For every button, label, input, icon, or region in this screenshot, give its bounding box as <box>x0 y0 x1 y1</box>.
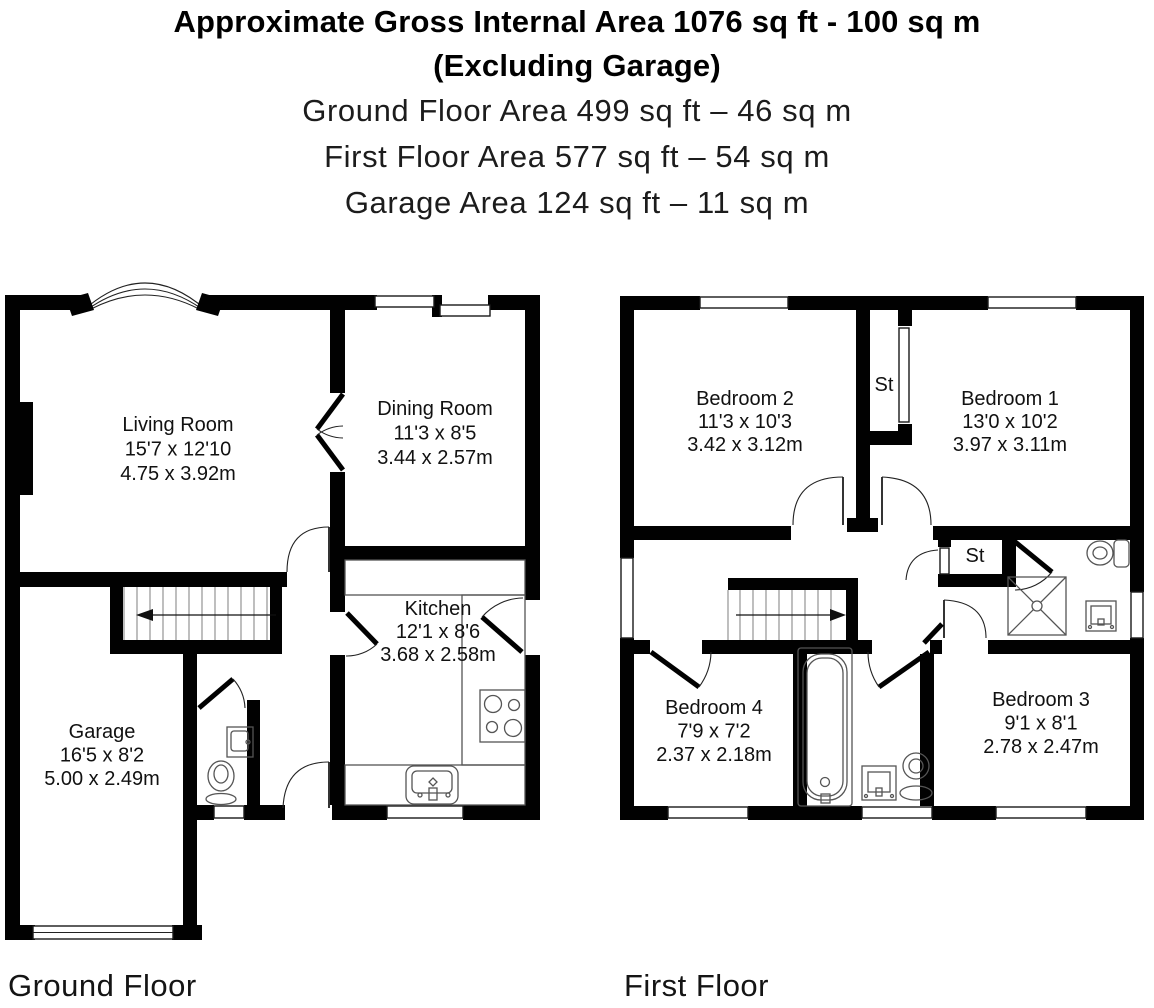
room-label-kitchen-name: Kitchen <box>405 598 472 620</box>
storage2-label: St <box>966 545 985 567</box>
ground-stairs <box>124 587 276 640</box>
storage1-label: St <box>875 374 894 396</box>
landing-window <box>621 558 633 638</box>
dining-window-2 <box>440 305 490 316</box>
ground-floor-title: Ground Floor <box>8 968 197 1004</box>
shower-room-door <box>1014 541 1052 590</box>
header-title-line2: (Excluding Garage) <box>0 44 1154 88</box>
room-label-bedroom2-imperial: 11'3 x 10'3 <box>698 411 792 433</box>
back-door <box>283 762 329 808</box>
room-label-bedroom2-metric: 3.42 x 3.12m <box>687 434 803 456</box>
header: Approximate Gross Internal Area 1076 sq … <box>0 0 1154 226</box>
bedroom3-door <box>944 600 986 638</box>
kitchen-hall-door <box>346 613 377 656</box>
room-label-bedroom4-name: Bedroom 4 <box>665 697 763 719</box>
bedroom3-window <box>996 807 1086 818</box>
bathroom-basin-icon <box>862 766 896 800</box>
room-label-living-room-name: Living Room <box>122 414 233 436</box>
room-label-bedroom3-metric: 2.78 x 2.47m <box>983 736 1099 758</box>
wc-toilet-icon <box>206 761 236 805</box>
header-garage-area: Garage Area 124 sq ft – 11 sq m <box>0 180 1154 226</box>
room-label-dining-room-imperial: 11'3 x 8'5 <box>394 423 477 445</box>
bathroom-window <box>862 807 932 818</box>
header-ground-floor-area: Ground Floor Area 499 sq ft – 46 sq m <box>0 88 1154 134</box>
bay-window <box>66 283 224 316</box>
first-floor-plan: Bedroom 2 11'3 x 10'3 3.42 x 3.12m Bedro… <box>610 288 1154 834</box>
room-label-kitchen-metric: 3.68 x 2.58m <box>380 644 496 666</box>
kitchen-sink-icon <box>406 766 458 804</box>
stairs-up-arrow <box>136 609 153 621</box>
floorplan-page: Approximate Gross Internal Area 1076 sq … <box>0 0 1154 1008</box>
room-label-bedroom3-imperial: 9'1 x 8'1 <box>1004 713 1077 735</box>
room-label-garage-metric: 5.00 x 2.49m <box>44 768 160 790</box>
room-label-bedroom1-name: Bedroom 1 <box>961 388 1059 410</box>
room-label-living-room-metric: 4.75 x 3.92m <box>120 463 236 485</box>
kitchen-fixtures <box>345 560 525 805</box>
stairs-up-arrow <box>830 609 846 621</box>
wc-door <box>199 679 245 708</box>
shower-room-window <box>1131 592 1143 638</box>
room-label-kitchen-imperial: 12'1 x 8'6 <box>396 621 480 643</box>
shower-basin-icon <box>1086 601 1116 631</box>
room-label-bedroom4-metric: 2.37 x 2.18m <box>656 744 772 766</box>
bathroom-fixtures <box>798 648 932 806</box>
living-room-door <box>287 527 329 572</box>
storage2-door <box>940 548 949 574</box>
first-stairs <box>728 590 846 640</box>
bedroom2-window <box>700 297 788 308</box>
shower-tray-icon <box>1008 577 1066 635</box>
header-first-floor-area: First Floor Area 577 sq ft – 54 sq m <box>0 134 1154 180</box>
room-label-bedroom1-imperial: 13'0 x 10'2 <box>962 411 1058 433</box>
bedroom4-door <box>651 652 711 687</box>
first-floor-title: First Floor <box>624 968 769 1004</box>
wc-fixtures <box>206 727 253 805</box>
room-label-dining-room-metric: 3.44 x 2.57m <box>377 447 493 469</box>
shower-room-fixtures <box>1008 540 1129 635</box>
room-label-garage-imperial: 16'5 x 8'2 <box>60 745 144 767</box>
room-label-bedroom1-metric: 3.97 x 3.11m <box>953 434 1067 456</box>
bedroom1-window <box>988 297 1076 308</box>
hob-icon <box>480 690 525 742</box>
storage1-door <box>899 328 909 422</box>
kitchen-window <box>387 806 463 818</box>
kitchen-counter-top <box>345 560 525 595</box>
room-label-dining-room-name: Dining Room <box>377 398 493 420</box>
bathroom-door <box>868 652 929 687</box>
bedroom1-door <box>882 477 931 525</box>
wc-window <box>214 806 244 818</box>
room-label-bedroom2-name: Bedroom 2 <box>696 388 794 410</box>
room-label-bedroom4-imperial: 7'9 x 7'2 <box>677 721 750 743</box>
shower-toilet-icon <box>1087 540 1129 567</box>
room-label-garage-name: Garage <box>69 721 136 743</box>
bedroom2-door <box>793 477 843 525</box>
bedroom4-window <box>668 807 748 818</box>
ground-floor-plan: Living Room 15'7 x 12'10 4.75 x 3.92m Di… <box>0 280 560 952</box>
dining-window <box>375 296 434 307</box>
room-label-bedroom3-name: Bedroom 3 <box>992 689 1090 711</box>
french-doors-living-dining <box>317 394 343 470</box>
room-label-living-room-imperial: 15'7 x 12'10 <box>125 439 232 461</box>
header-title-line1: Approximate Gross Internal Area 1076 sq … <box>0 0 1154 44</box>
